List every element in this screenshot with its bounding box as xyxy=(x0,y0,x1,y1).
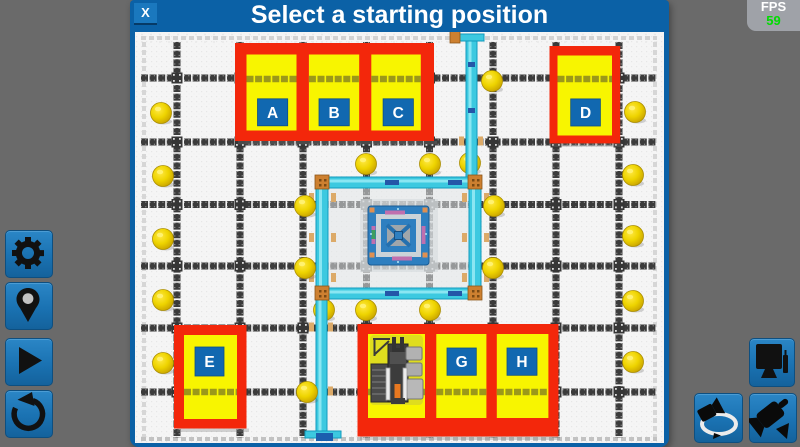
svg-text:G: G xyxy=(456,354,468,371)
svg-text:H: H xyxy=(516,354,527,371)
svg-text:A: A xyxy=(267,105,278,122)
svg-text:E: E xyxy=(204,354,214,371)
svg-text:C: C xyxy=(393,105,404,122)
svg-text:B: B xyxy=(329,105,340,122)
svg-text:D: D xyxy=(580,105,591,122)
